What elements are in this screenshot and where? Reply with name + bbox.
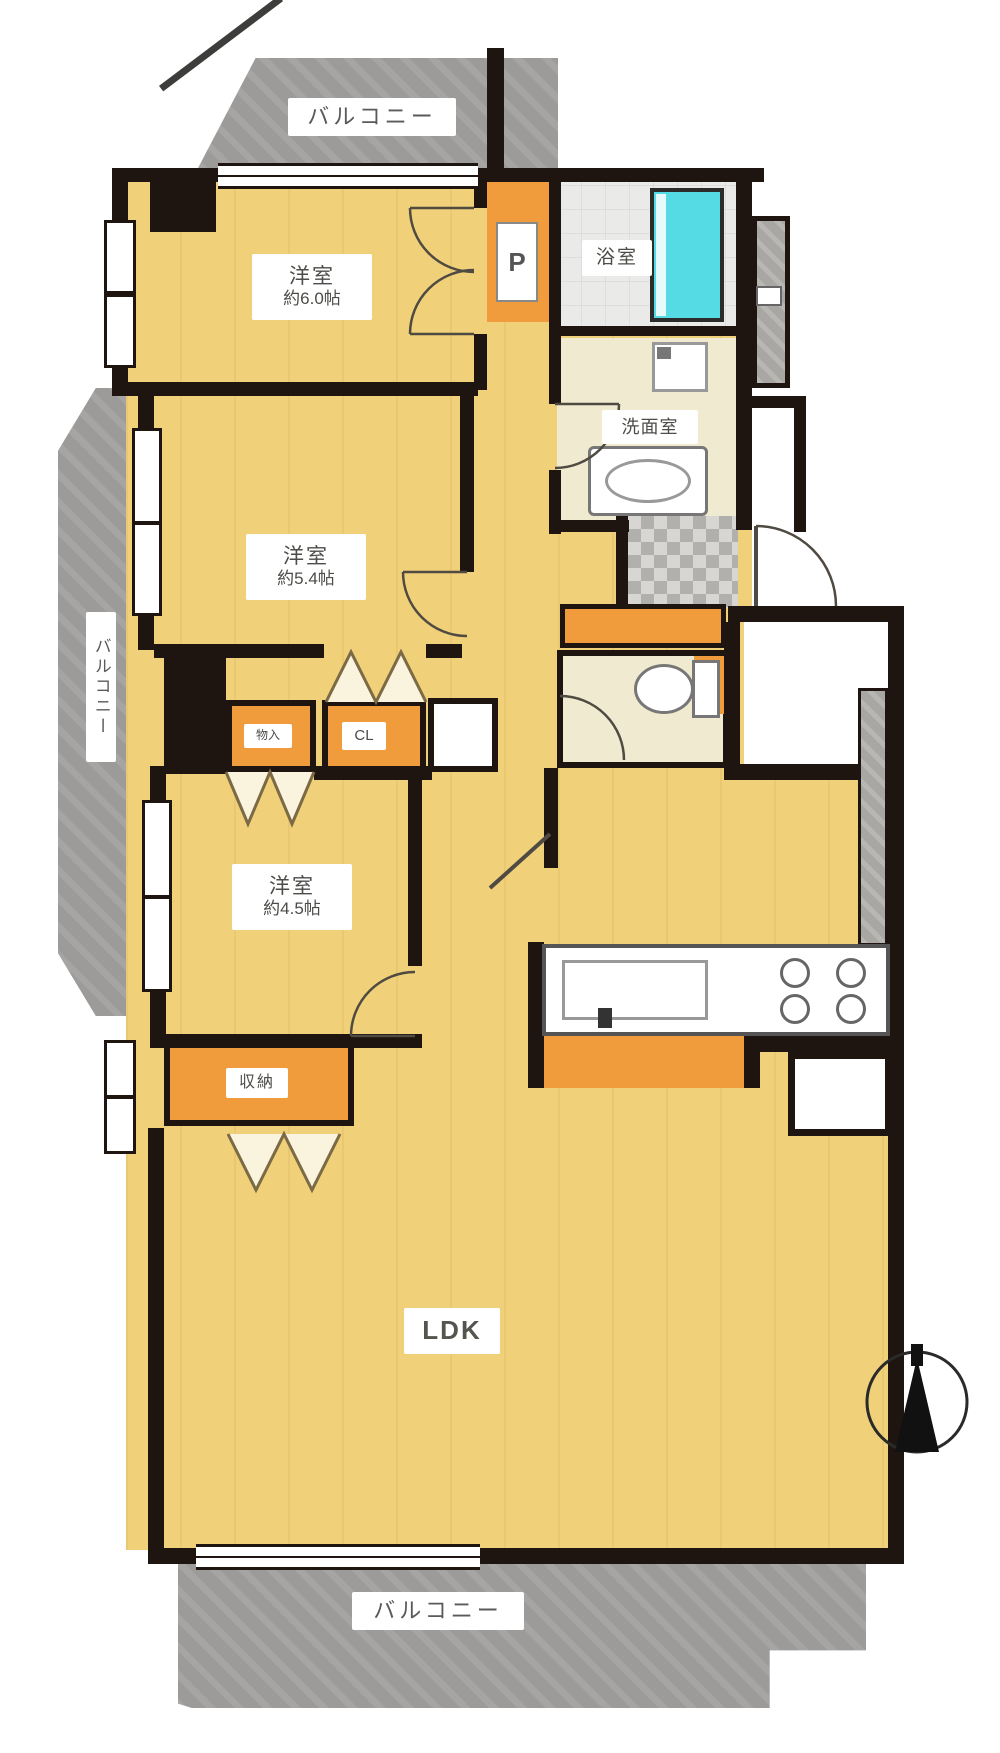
wall	[112, 382, 478, 396]
stove	[774, 954, 878, 1026]
corridor-hatch-strip	[858, 688, 888, 946]
closet-text: CL	[354, 727, 373, 744]
wall	[478, 1548, 904, 1564]
wall	[150, 1034, 422, 1048]
room2-size: 約5.4帖	[277, 569, 335, 589]
room3-size: 約4.5帖	[263, 899, 321, 919]
washroom-label: 洗面室	[602, 410, 698, 444]
small-closet-label: 物入	[244, 724, 292, 748]
toilet-bowl	[634, 664, 694, 714]
vanity-bowl	[605, 459, 691, 503]
window	[104, 1040, 136, 1098]
toilet-tank	[692, 660, 720, 718]
storage-text: 収納	[239, 1074, 275, 1092]
pillar-mark-text: P	[508, 247, 525, 278]
washer-pan	[652, 342, 708, 392]
storage-label: 収納	[226, 1068, 288, 1098]
ldk-text: LDK	[422, 1316, 481, 1346]
balcony-top-text: バルコニー	[307, 104, 437, 129]
wall	[561, 326, 737, 336]
bathroom-text: 浴室	[596, 247, 638, 269]
wall	[460, 388, 474, 572]
wall	[314, 766, 432, 780]
burner	[780, 958, 810, 988]
washer-drain	[657, 347, 671, 359]
window	[104, 1096, 136, 1154]
floor-plan: バルコニー バルコニー バルコニー	[0, 0, 1000, 1753]
wall	[148, 1128, 164, 1564]
balcony-bottom-label: バルコニー	[352, 1592, 524, 1630]
wall	[794, 396, 806, 532]
bathtub	[650, 188, 724, 322]
balcony-top-label: バルコニー	[288, 98, 456, 136]
wall	[478, 168, 562, 182]
window	[104, 294, 136, 368]
room3-name: 洋室	[269, 875, 315, 899]
washroom-text: 洗面室	[622, 417, 679, 438]
small-closet-text: 物入	[256, 729, 280, 743]
window	[132, 522, 162, 616]
burner	[836, 994, 866, 1024]
window	[142, 896, 172, 992]
balcony-bottom-text: バルコニー	[373, 1598, 503, 1623]
window	[142, 800, 172, 898]
burner	[836, 958, 866, 988]
ldk-label: LDK	[404, 1308, 500, 1354]
window	[196, 1544, 480, 1570]
entry-tile	[628, 516, 738, 608]
kitchen-floor-band	[542, 1036, 744, 1088]
wall	[728, 606, 904, 622]
kitchen-counter	[542, 944, 890, 1036]
kitchen-faucet	[598, 1008, 612, 1028]
room1-size: 約6.0帖	[283, 289, 341, 309]
hall-cabinet	[428, 698, 498, 772]
wall	[724, 622, 740, 780]
wall	[549, 182, 561, 404]
closet-label: CL	[342, 722, 386, 750]
refrigerator-space	[788, 1052, 892, 1136]
shoe-cabinet	[560, 604, 726, 648]
kitchen-sink	[562, 960, 708, 1020]
room2-label: 洋室 約5.4帖	[246, 534, 366, 600]
room3-label: 洋室 約4.5帖	[232, 864, 352, 930]
wall	[474, 334, 487, 390]
pillar-box: P	[496, 222, 538, 302]
meter-box	[756, 286, 782, 306]
window	[104, 220, 136, 294]
wall	[758, 1036, 904, 1052]
wall	[556, 168, 764, 182]
room1-name: 洋室	[289, 265, 335, 289]
vanity-sink	[588, 446, 708, 516]
window	[132, 428, 162, 524]
bathtub-ledge	[656, 194, 666, 316]
wall	[544, 768, 558, 868]
wall	[426, 644, 462, 658]
wall	[549, 520, 629, 532]
room2-name: 洋室	[283, 545, 329, 569]
bathroom-label: 浴室	[582, 240, 652, 276]
wall	[408, 780, 422, 966]
balcony-divider-wall	[487, 48, 504, 170]
room1-label: 洋室 約6.0帖	[252, 254, 372, 320]
wall	[736, 170, 752, 530]
balcony-left-text: バルコニー	[91, 637, 111, 737]
wall-block	[164, 648, 226, 774]
window	[218, 163, 478, 189]
balcony-bottom	[178, 1564, 866, 1708]
balcony-left-label: バルコニー	[86, 612, 116, 762]
burner	[780, 994, 810, 1024]
wall	[148, 1548, 200, 1564]
wall-corner-block	[150, 168, 216, 232]
